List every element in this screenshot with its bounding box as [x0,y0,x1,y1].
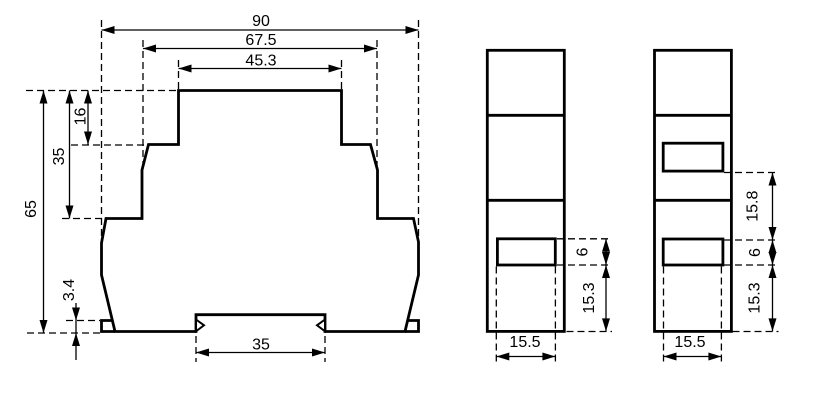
svg-text:15.3: 15.3 [581,282,598,313]
svg-text:15.3: 15.3 [746,282,763,313]
svg-text:15.5: 15.5 [509,334,540,351]
svg-text:35: 35 [252,337,270,354]
svg-text:90: 90 [252,13,270,30]
svg-text:65: 65 [23,200,40,218]
svg-text:6: 6 [574,247,591,256]
svg-text:15.8: 15.8 [744,191,761,222]
svg-text:16: 16 [72,108,89,126]
svg-text:3.4: 3.4 [61,279,78,301]
svg-text:6: 6 [747,248,764,257]
svg-text:15.5: 15.5 [674,334,705,351]
svg-text:67.5: 67.5 [245,32,276,49]
svg-text:45.3: 45.3 [245,53,276,70]
svg-text:35: 35 [51,148,68,166]
